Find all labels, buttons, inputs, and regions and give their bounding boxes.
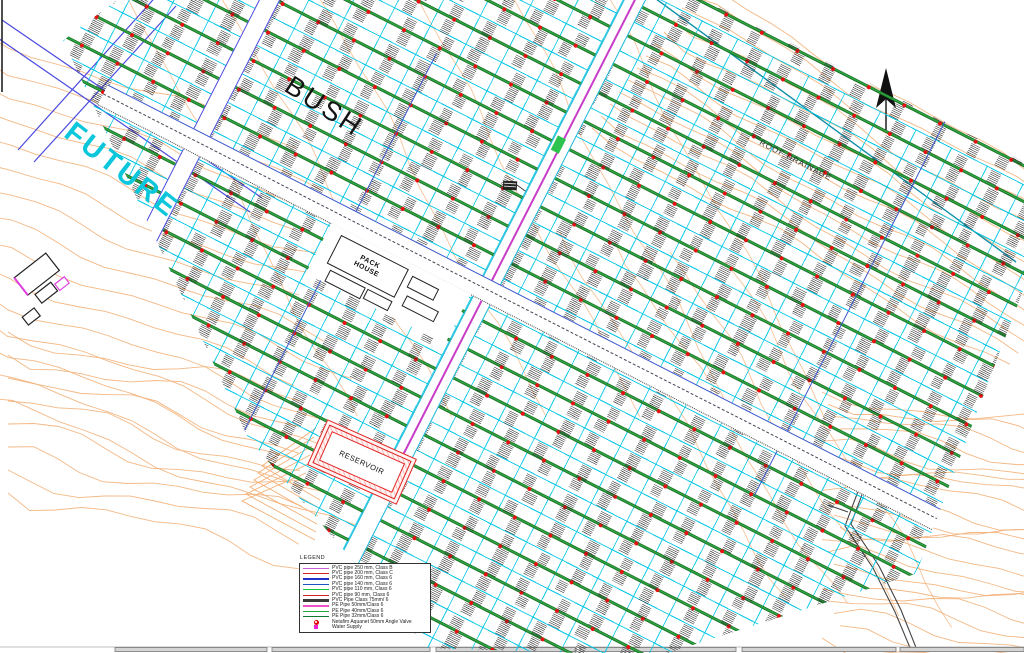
plot-label-block [772,260,788,277]
legend-swatch [303,584,329,585]
plot-label-block [542,340,558,358]
plot-label-block [243,241,259,258]
legend-row: Water Supply [303,625,428,630]
plot-label-block [879,135,894,152]
plot-label-block [928,214,945,232]
legend-swatch [303,605,329,606]
legend-swatch [303,578,329,579]
plot-label-block [803,527,819,544]
plot-label-block [625,184,640,201]
pipe-line-swatch [303,599,329,602]
legend-swatch [303,620,329,625]
legend-swatch [303,595,329,596]
legend-swatch [303,599,329,602]
farm-building [55,277,69,291]
pipe-line-swatch [303,611,329,612]
plot-label-block [238,77,255,95]
plot-label-block [785,481,800,497]
pipe-line-swatch [303,573,329,574]
title-block-cell [272,648,430,652]
plot-label-block [790,287,807,305]
plot-label-block [691,326,706,342]
plot-label-block [543,0,559,15]
plot-label-block [722,162,737,178]
pipe-line-swatch [303,589,329,590]
plot-label-block [691,307,708,325]
plot-label-block [793,557,808,574]
legend-swatch [303,568,329,569]
plot-label-block [620,271,637,289]
legend-box: PVC pipe 250 mm, Class B PVC pipe 200 mm… [299,563,431,634]
plot-label-block [402,0,418,15]
plot-label-block [503,410,519,428]
plot-label-block [934,466,948,480]
plot-label-block [540,356,556,373]
legend-swatch [303,611,329,612]
title-block-cell [115,648,267,652]
plot-label-block [728,237,744,254]
plot-label-block [973,289,989,307]
plot-label-block [505,518,521,536]
farm-building [22,308,40,325]
plot-label-block [583,198,597,212]
legend-row: Netafim Aquanet 50mm Angle Valve [303,619,428,624]
legend-swatch [303,573,329,574]
irrigation-plan-canvas: PACK HOUSE RESERVOIR BUSH FUTURE ROOF DR… [0,0,1024,653]
plot-label-block [794,127,809,144]
pipe-line-swatch [303,568,329,569]
plot-label-block [484,454,500,471]
plot-label-block [890,535,906,553]
plot-label-block [749,212,764,228]
plot-label-block [469,392,484,407]
plot-label-block [822,249,838,267]
farm-buildings-group [0,253,74,325]
plot-label-block [439,18,455,36]
plot-label-block [189,233,206,251]
valve-symbol [314,620,319,625]
plot-label-block [638,587,654,605]
structure-annotation-box [503,181,517,191]
plot-label-block [281,242,298,261]
legend-title: LEGEND [300,555,431,561]
pipe-line-swatch [303,595,329,596]
legend-swatch [303,625,329,629]
pipe-line-swatch [303,616,329,617]
plot-label-block [457,170,473,188]
plot-label-block [673,460,688,475]
plot-label-block [314,169,329,185]
plot-label-block [636,263,654,282]
plot-label-block [793,109,810,127]
plot-label-block [573,643,587,653]
legend-item-label: Water Supply [332,625,362,630]
legend: LEGEND PVC pipe 250 mm, Class B PVC pipe… [299,555,431,633]
title-block-cell [742,648,896,652]
plot-label-block [617,108,632,124]
plot-label-block [964,213,979,230]
plot-label-block [894,357,909,374]
plot-label-block [956,407,972,425]
plot-label-block [702,133,719,152]
plot-label-block [151,51,167,67]
pipe-line-swatch [303,584,329,585]
plot-label-block [554,579,568,594]
plot-label-block [884,388,899,405]
pipe-line-swatch [303,578,329,579]
plot-label-block [292,409,307,425]
plot-label-block [963,393,978,409]
legend-swatch [303,589,329,590]
plot-label-block [785,392,802,410]
plot-label-block [266,110,282,128]
pipe-line-swatch [303,605,329,606]
title-block-cell [900,648,1024,652]
plot-label-block [322,0,337,8]
plot-label-block [1017,204,1024,221]
plot-label-block [453,0,467,3]
plot-label-block [581,521,596,538]
plot-label-block [221,194,236,210]
water-supply-symbol [314,625,318,629]
legend-swatch [303,616,329,617]
